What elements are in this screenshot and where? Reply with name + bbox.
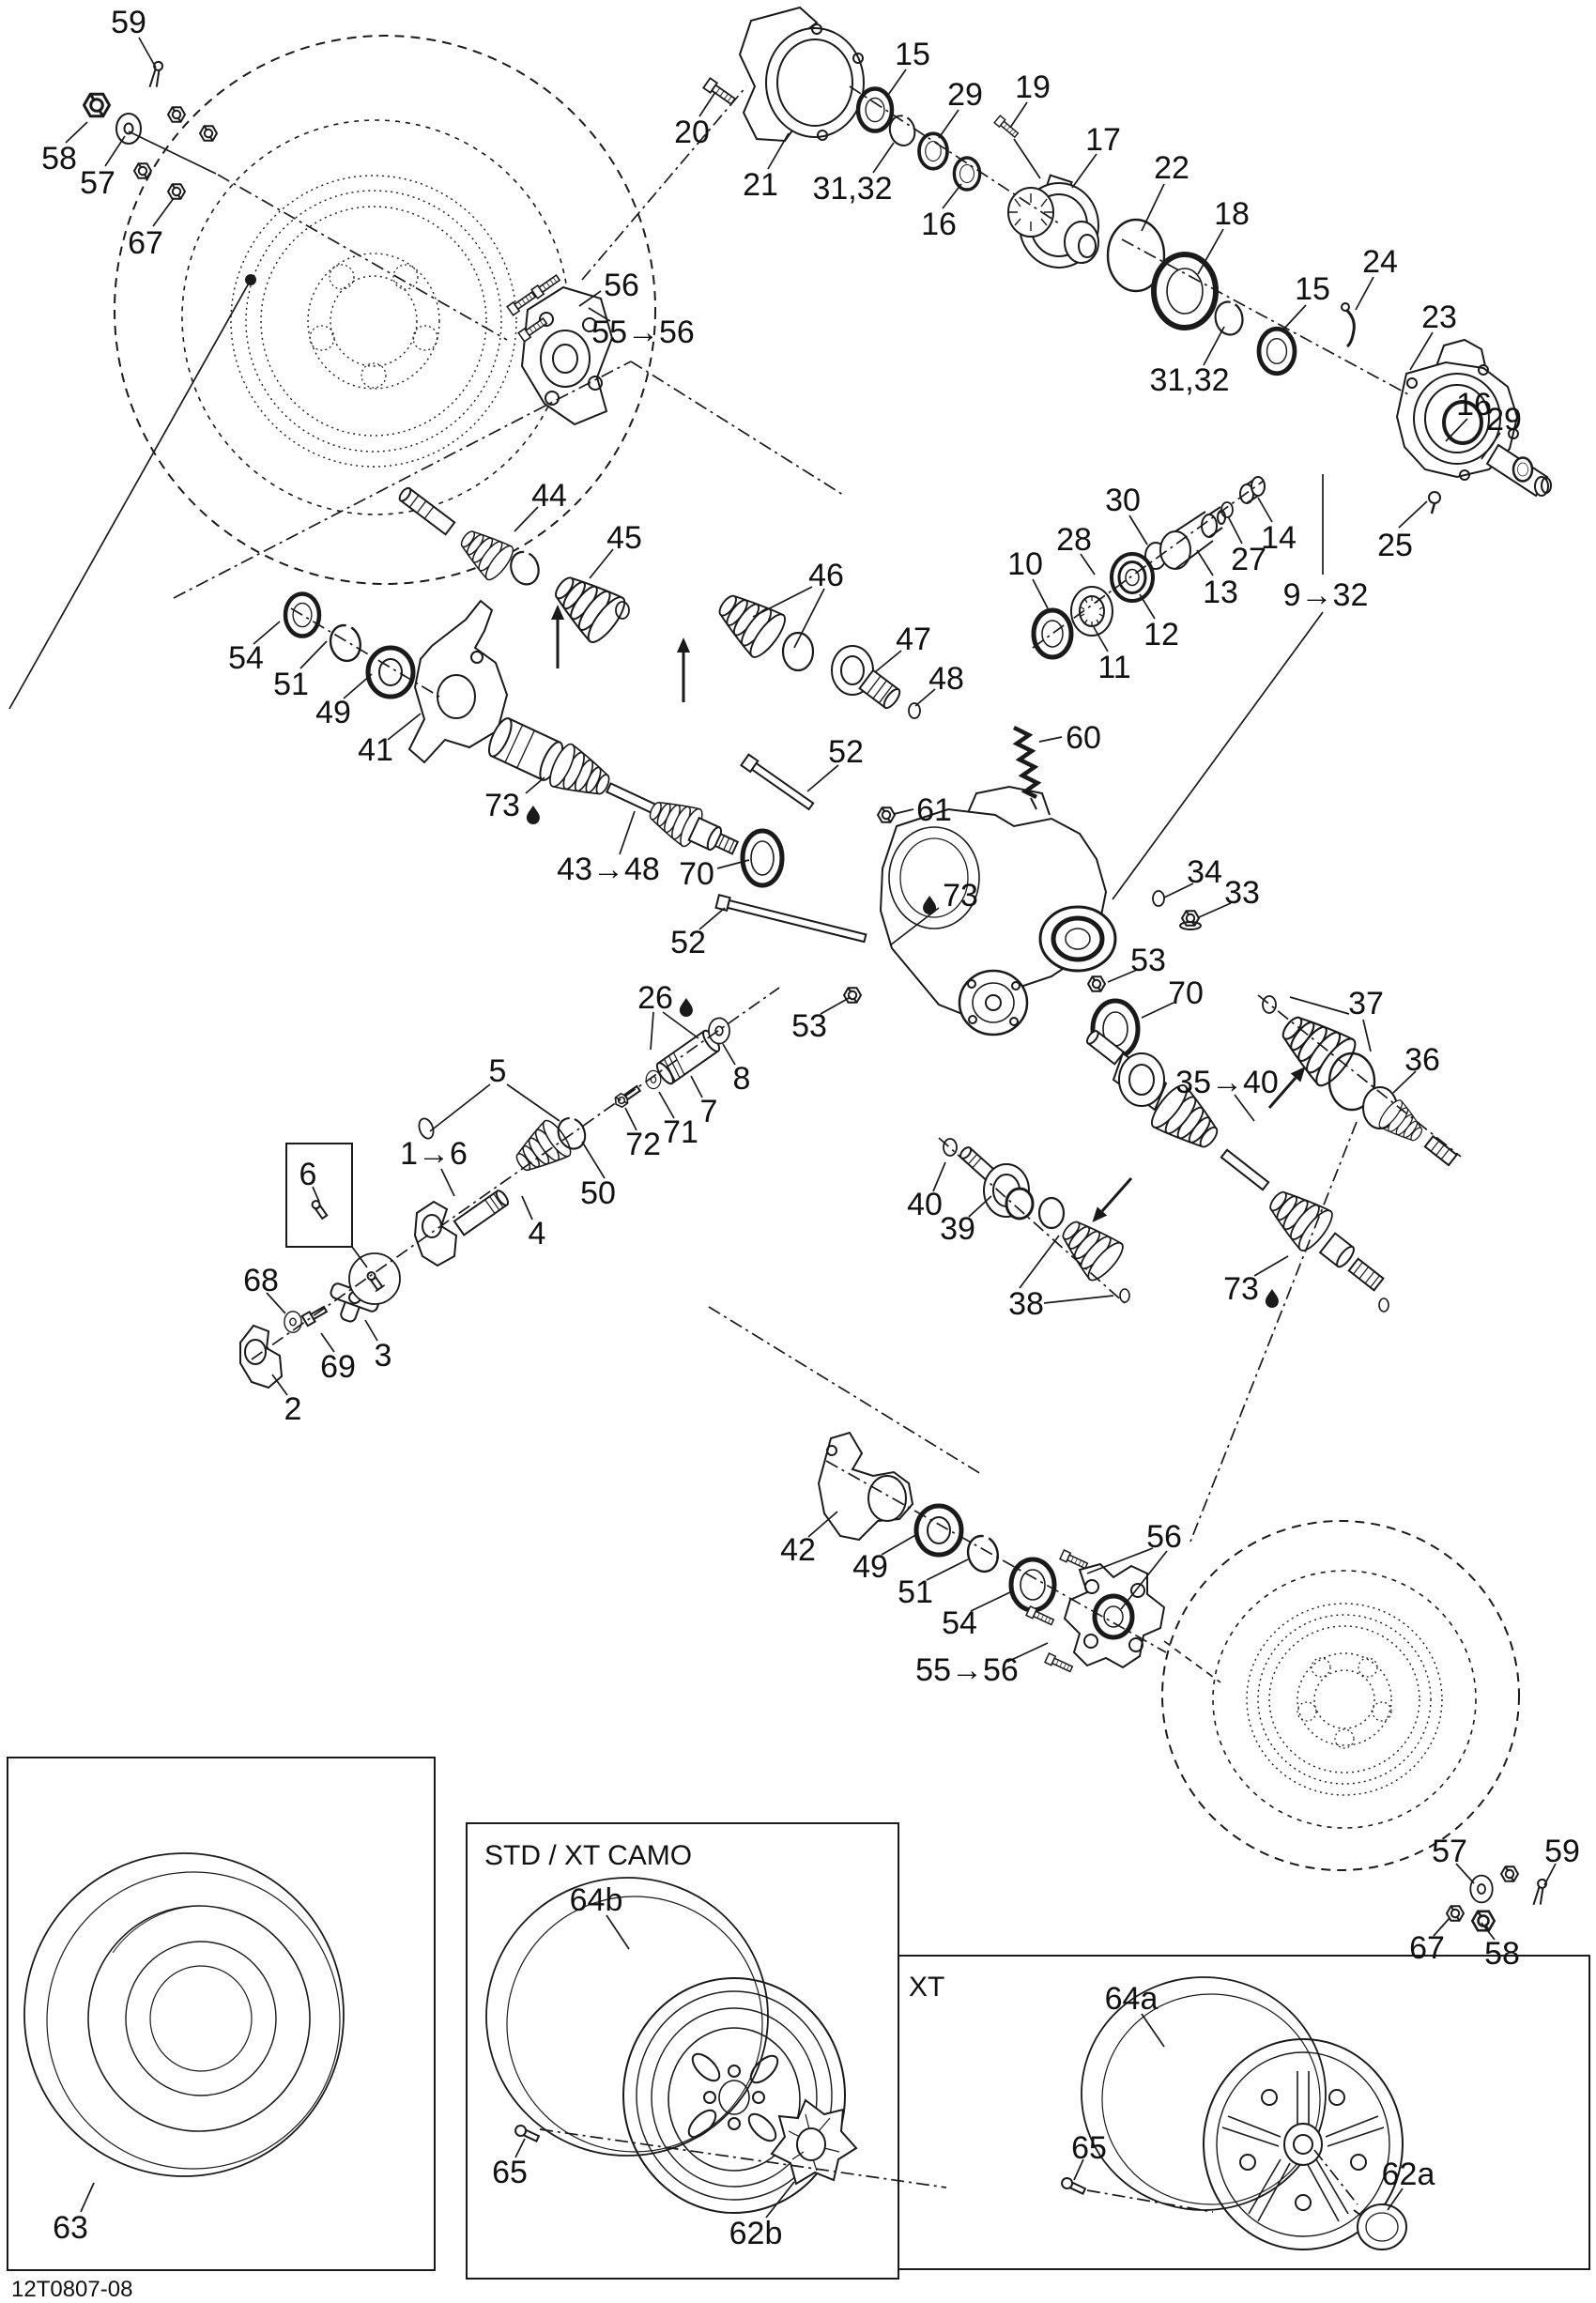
bearing-49b bbox=[916, 1506, 961, 1555]
exploded-parts-diagram: STD / XT CAMO XT 12T0807-08 595857675655… bbox=[0, 0, 1596, 2303]
leader-line bbox=[105, 136, 125, 166]
leader-line bbox=[1356, 277, 1373, 310]
callout-24: 24 bbox=[1362, 244, 1398, 280]
callout-72: 72 bbox=[625, 1127, 661, 1162]
clamp-38b bbox=[1120, 1289, 1129, 1302]
nut-67 bbox=[168, 184, 185, 199]
leader-line bbox=[886, 69, 906, 98]
roll-pin-24 bbox=[1342, 303, 1354, 346]
leader-line bbox=[753, 587, 812, 617]
rear-tire bbox=[1162, 1521, 1519, 1870]
yoke-shaft-4 bbox=[415, 1189, 510, 1266]
callout-45: 45 bbox=[606, 520, 642, 556]
leader-line bbox=[1290, 997, 1349, 1014]
callout-22: 22 bbox=[1154, 150, 1189, 186]
callout-16: 16 bbox=[921, 207, 957, 242]
callout-7: 7 bbox=[700, 1094, 718, 1129]
bearing-housing-42 bbox=[819, 1433, 913, 1540]
vent-nut-61 bbox=[878, 807, 895, 822]
callout-70: 70 bbox=[1168, 975, 1204, 1011]
item-6-box bbox=[286, 1144, 352, 1247]
callout-25: 25 bbox=[1377, 528, 1413, 563]
leader-line bbox=[1072, 154, 1097, 188]
dashed-line bbox=[1164, 1641, 1220, 1682]
callout-64b: 64b bbox=[570, 1882, 623, 1918]
callout-70: 70 bbox=[679, 856, 714, 892]
phantom-line bbox=[540, 2129, 946, 2188]
callout-42: 42 bbox=[780, 1532, 816, 1568]
washer-57 bbox=[116, 114, 141, 144]
nut-53a bbox=[1088, 976, 1105, 991]
bearing-15b bbox=[1259, 329, 1295, 374]
bolt-72 bbox=[613, 1083, 642, 1109]
document-code: 12T0807-08 bbox=[11, 2277, 132, 2302]
callout-53: 53 bbox=[1130, 943, 1166, 978]
leader-line bbox=[139, 38, 156, 68]
hub-bolt-56c bbox=[1045, 1653, 1073, 1674]
clamp-38 bbox=[1039, 1198, 1064, 1228]
callout-62b: 62b bbox=[729, 2216, 783, 2251]
leader-line bbox=[1197, 550, 1213, 576]
xt-box bbox=[898, 1956, 1589, 2269]
leader-line bbox=[153, 198, 174, 226]
washer-68 bbox=[284, 1312, 301, 1332]
leader-line bbox=[873, 143, 894, 173]
callout-65: 65 bbox=[492, 2155, 528, 2190]
leader-line bbox=[1410, 332, 1433, 370]
seal-10 bbox=[1034, 610, 1071, 657]
callout-34: 34 bbox=[1187, 854, 1222, 890]
pinion-shaft-13 bbox=[1160, 507, 1225, 569]
leader-line bbox=[1282, 305, 1306, 330]
leader-line bbox=[1258, 498, 1272, 522]
callout-28: 28 bbox=[1056, 522, 1092, 558]
callout-1→6: 1→6 bbox=[400, 1136, 468, 1172]
tire-detail-box bbox=[8, 1758, 435, 2270]
gearcase-cover-21 bbox=[740, 8, 867, 141]
leader-line bbox=[1363, 1020, 1371, 1052]
leader-line bbox=[894, 809, 913, 814]
callout-20: 20 bbox=[674, 115, 710, 150]
callout-61: 61 bbox=[916, 792, 952, 828]
ring-34 bbox=[1153, 891, 1164, 906]
stub-shaft-44 bbox=[397, 486, 517, 583]
seal-70a bbox=[743, 831, 782, 885]
seal-16 bbox=[954, 158, 979, 190]
assembly-arrow bbox=[1102, 1178, 1131, 1211]
callout-23: 23 bbox=[1421, 299, 1457, 335]
callout-15: 15 bbox=[895, 37, 930, 72]
bolt-52a bbox=[741, 755, 814, 812]
parts-diagram-page: STD / XT CAMO XT 12T0807-08 595857675655… bbox=[0, 0, 1596, 2303]
leader-line bbox=[1129, 515, 1147, 545]
callout-8: 8 bbox=[733, 1061, 751, 1097]
leader-line bbox=[1033, 579, 1048, 608]
callout-41: 41 bbox=[358, 732, 393, 768]
callout-2: 2 bbox=[284, 1391, 302, 1427]
callout-54: 54 bbox=[942, 1605, 977, 1641]
callout-47: 47 bbox=[896, 622, 931, 657]
callout-38: 38 bbox=[1008, 1286, 1044, 1322]
callout-52: 52 bbox=[670, 925, 706, 960]
stub-shaft-36 bbox=[1363, 1087, 1457, 1165]
nut-53b bbox=[844, 988, 861, 1003]
visco-lok-unit-17 bbox=[1008, 176, 1098, 268]
callout-59: 59 bbox=[1544, 1834, 1580, 1869]
leader-line bbox=[663, 1012, 698, 1038]
front-axle-43-48 bbox=[484, 715, 738, 853]
callout-33: 33 bbox=[1224, 875, 1260, 911]
valve-stem-65a bbox=[1060, 2176, 1086, 2196]
clamp-46 bbox=[783, 633, 813, 670]
callout-52: 52 bbox=[828, 734, 864, 770]
leader-line bbox=[1140, 594, 1155, 619]
grease-fitting-6 bbox=[311, 1200, 328, 1220]
callout-49: 49 bbox=[315, 695, 351, 730]
leader-line bbox=[1039, 737, 1062, 742]
callout-64a: 64a bbox=[1105, 1981, 1159, 2017]
hub-bolt-56a bbox=[1060, 1550, 1088, 1571]
cotter-pin-59 bbox=[148, 61, 163, 89]
bearing-49 bbox=[368, 648, 413, 697]
wheel-hub-55 bbox=[1065, 1564, 1164, 1667]
spacer-14 bbox=[1240, 477, 1265, 503]
leader-lines-layer bbox=[9, 38, 1556, 2218]
callout-55→56: 55→56 bbox=[915, 1652, 1019, 1688]
output-joint-47 bbox=[832, 646, 902, 711]
callout-44: 44 bbox=[531, 478, 567, 514]
callout-51: 51 bbox=[273, 667, 309, 702]
xt-box-title: XT bbox=[909, 1972, 944, 2003]
leader-line bbox=[81, 2183, 94, 2212]
plug-25 bbox=[1429, 492, 1440, 514]
callout-17: 17 bbox=[1085, 122, 1121, 158]
phantom-line bbox=[631, 361, 843, 495]
callout-57: 57 bbox=[1432, 1834, 1467, 1869]
callout-31,32: 31,32 bbox=[812, 171, 892, 207]
callout-63: 63 bbox=[53, 2210, 88, 2246]
leader-line bbox=[620, 811, 635, 854]
callout-57: 57 bbox=[80, 165, 115, 201]
callout-51: 51 bbox=[898, 1574, 933, 1610]
valve-stem-65b bbox=[514, 2124, 540, 2143]
leader-line bbox=[939, 110, 959, 138]
callout-9→32: 9→32 bbox=[1283, 577, 1369, 613]
callout-40: 40 bbox=[907, 1187, 943, 1222]
callout-48: 48 bbox=[928, 661, 964, 697]
leader-line bbox=[1010, 102, 1027, 128]
leader-line bbox=[1020, 1236, 1059, 1288]
leader-line bbox=[943, 184, 961, 208]
leader-line bbox=[1044, 1296, 1113, 1303]
callout-29: 29 bbox=[1486, 402, 1522, 438]
leader-line bbox=[1204, 327, 1224, 365]
callout-73: 73 bbox=[1223, 1271, 1259, 1307]
callout-15: 15 bbox=[1295, 271, 1330, 307]
std-xt-camo-box-title: STD / XT CAMO bbox=[484, 1840, 692, 1871]
callout-54: 54 bbox=[228, 640, 264, 676]
callout-4: 4 bbox=[529, 1216, 546, 1251]
callout-19: 19 bbox=[1015, 69, 1051, 105]
callout-39: 39 bbox=[940, 1211, 975, 1247]
callout-37: 37 bbox=[1348, 986, 1384, 1021]
snap-ring-31-32b bbox=[1212, 299, 1245, 337]
std-xt-camo-box bbox=[467, 1823, 898, 2279]
lubrication-droplet-icon bbox=[680, 998, 693, 1017]
callout-68: 68 bbox=[243, 1263, 279, 1298]
ring-40 bbox=[944, 1139, 957, 1156]
leader-line bbox=[651, 1012, 653, 1050]
callout-43→48: 43→48 bbox=[557, 852, 660, 887]
leader-line bbox=[1087, 1548, 1153, 1574]
detail-boxes: STD / XT CAMO XT bbox=[8, 1758, 1589, 2279]
callout-71: 71 bbox=[663, 1114, 698, 1150]
leader-line bbox=[441, 1169, 454, 1196]
callout-13: 13 bbox=[1203, 575, 1238, 610]
callout-31,32: 31,32 bbox=[1149, 362, 1229, 398]
leader-line bbox=[1399, 501, 1427, 528]
callout-58: 58 bbox=[41, 141, 77, 177]
callout-73: 73 bbox=[484, 788, 520, 823]
reference-line bbox=[9, 280, 251, 709]
callout-49: 49 bbox=[852, 1549, 888, 1585]
callout-18: 18 bbox=[1214, 196, 1250, 232]
callout-5: 5 bbox=[489, 1053, 507, 1089]
phantom-line bbox=[582, 86, 746, 280]
leader-line bbox=[1142, 2014, 1164, 2047]
leader-line bbox=[699, 92, 715, 116]
callout-69: 69 bbox=[320, 1349, 356, 1385]
callout-10: 10 bbox=[1007, 546, 1043, 582]
nut-33 bbox=[1180, 911, 1201, 929]
phantom-line bbox=[218, 175, 507, 340]
leader-line bbox=[1254, 1256, 1288, 1276]
snap-51b bbox=[964, 1532, 1002, 1574]
callout-12: 12 bbox=[1143, 617, 1179, 653]
clamp-37 bbox=[1263, 996, 1276, 1013]
callout-56: 56 bbox=[1146, 1519, 1182, 1555]
leader-line bbox=[1228, 516, 1242, 544]
leader-line bbox=[300, 641, 327, 668]
bolt-52b bbox=[716, 895, 867, 944]
callout-36: 36 bbox=[1404, 1042, 1440, 1078]
callout-58: 58 bbox=[1484, 1936, 1520, 1972]
callout-6: 6 bbox=[299, 1157, 317, 1192]
callout-30: 30 bbox=[1105, 483, 1141, 518]
ring-48 bbox=[909, 703, 920, 718]
callout-3: 3 bbox=[375, 1338, 392, 1374]
boot-5 bbox=[508, 1117, 575, 1182]
reference-dot bbox=[245, 274, 256, 285]
callout-67: 67 bbox=[1409, 1930, 1445, 1966]
callout-56: 56 bbox=[604, 268, 639, 303]
gear-11 bbox=[1071, 587, 1113, 636]
cv-boot-46 bbox=[708, 582, 790, 662]
lug-nut-58 bbox=[84, 94, 110, 115]
reference-line bbox=[1014, 139, 1040, 178]
spare-tire-63 bbox=[24, 1853, 344, 2176]
leader-line bbox=[526, 777, 545, 793]
leader-line bbox=[66, 122, 87, 143]
callout-11: 11 bbox=[1097, 650, 1130, 685]
callout-65: 65 bbox=[1071, 2130, 1107, 2166]
callout-46: 46 bbox=[808, 558, 844, 593]
inner-joint-39 bbox=[959, 1145, 1033, 1219]
leader-line bbox=[1142, 184, 1164, 231]
seal-54b bbox=[1011, 1559, 1054, 1610]
leader-line bbox=[606, 1915, 629, 1949]
assembly-arrow-head bbox=[677, 637, 690, 653]
callout-59: 59 bbox=[111, 5, 146, 40]
leader-line bbox=[430, 1084, 490, 1131]
callout-26: 26 bbox=[637, 980, 673, 1016]
callout-35→40: 35→40 bbox=[1175, 1065, 1279, 1100]
callout-53: 53 bbox=[791, 1008, 827, 1044]
callout-27: 27 bbox=[1231, 542, 1266, 577]
callout-60: 60 bbox=[1066, 720, 1101, 756]
center-cap-62b bbox=[772, 2100, 856, 2184]
callout-73: 73 bbox=[943, 878, 978, 914]
callout-62a: 62a bbox=[1382, 2157, 1435, 2192]
callout-29: 29 bbox=[947, 77, 983, 113]
leader-line bbox=[507, 1084, 560, 1121]
phantom-line bbox=[1087, 2190, 1213, 2212]
phantom-line bbox=[291, 608, 439, 697]
callout-21: 21 bbox=[743, 167, 778, 203]
seal-29 bbox=[919, 133, 947, 169]
phantom-line bbox=[1190, 1122, 1357, 1542]
leader-line bbox=[582, 1142, 605, 1178]
lubrication-droplet-icon bbox=[1266, 1289, 1279, 1308]
seal-18 bbox=[1154, 254, 1216, 328]
snap-51 bbox=[327, 622, 364, 664]
callout-50: 50 bbox=[580, 1175, 616, 1211]
callout-67: 67 bbox=[128, 225, 163, 261]
rear-wheel-fasteners bbox=[1447, 1866, 1547, 1930]
ring-8 bbox=[709, 1018, 729, 1043]
lubrication-droplet-icon bbox=[527, 806, 540, 824]
callout-55→56: 55→56 bbox=[591, 315, 695, 350]
alloy-wheel-64a bbox=[1082, 1977, 1403, 2249]
